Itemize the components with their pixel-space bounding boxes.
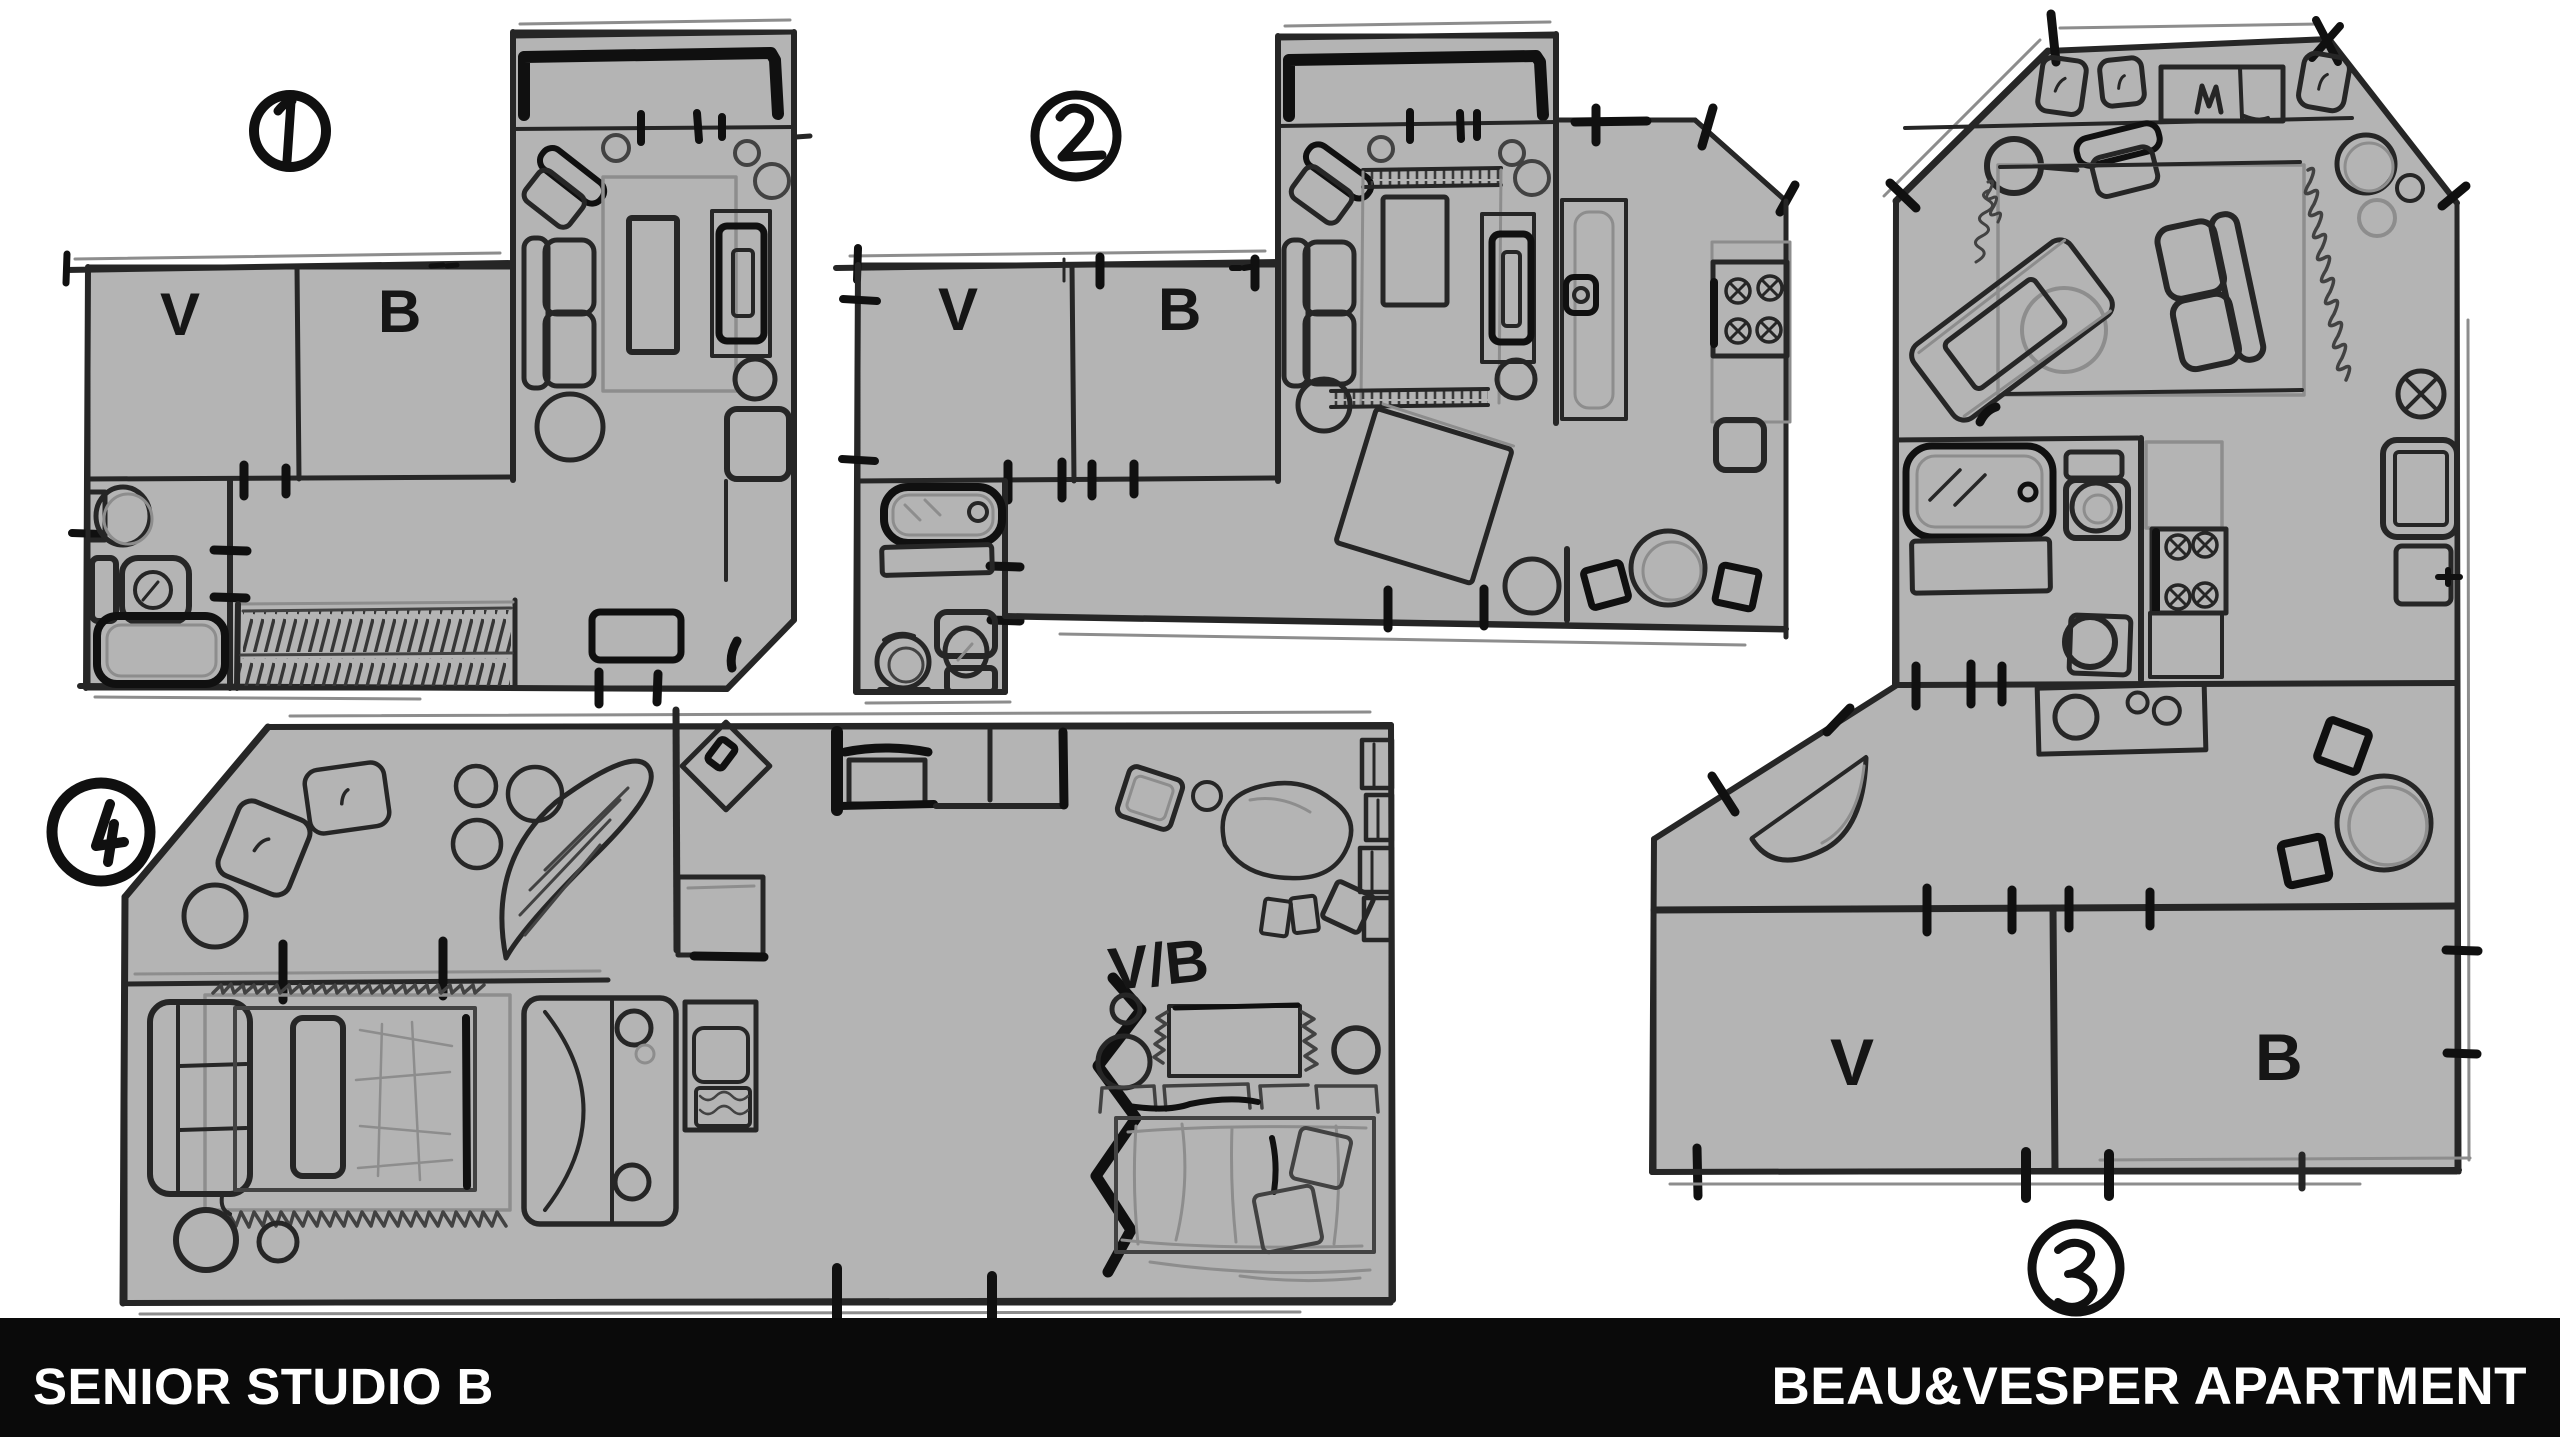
svg-text:V: V	[938, 276, 978, 343]
svg-text:V: V	[160, 281, 200, 348]
svg-text:BEAU&VESPER APARTMENT: BEAU&VESPER APARTMENT	[1771, 1357, 2527, 1416]
svg-text:V: V	[1830, 1025, 1874, 1099]
svg-text:B: B	[2255, 1020, 2303, 1094]
svg-text:SENIOR STUDIO B: SENIOR STUDIO B	[33, 1358, 494, 1415]
svg-text:V/B: V/B	[1105, 926, 1211, 1003]
svg-text:B: B	[1158, 276, 1201, 343]
svg-text:B: B	[378, 278, 421, 345]
